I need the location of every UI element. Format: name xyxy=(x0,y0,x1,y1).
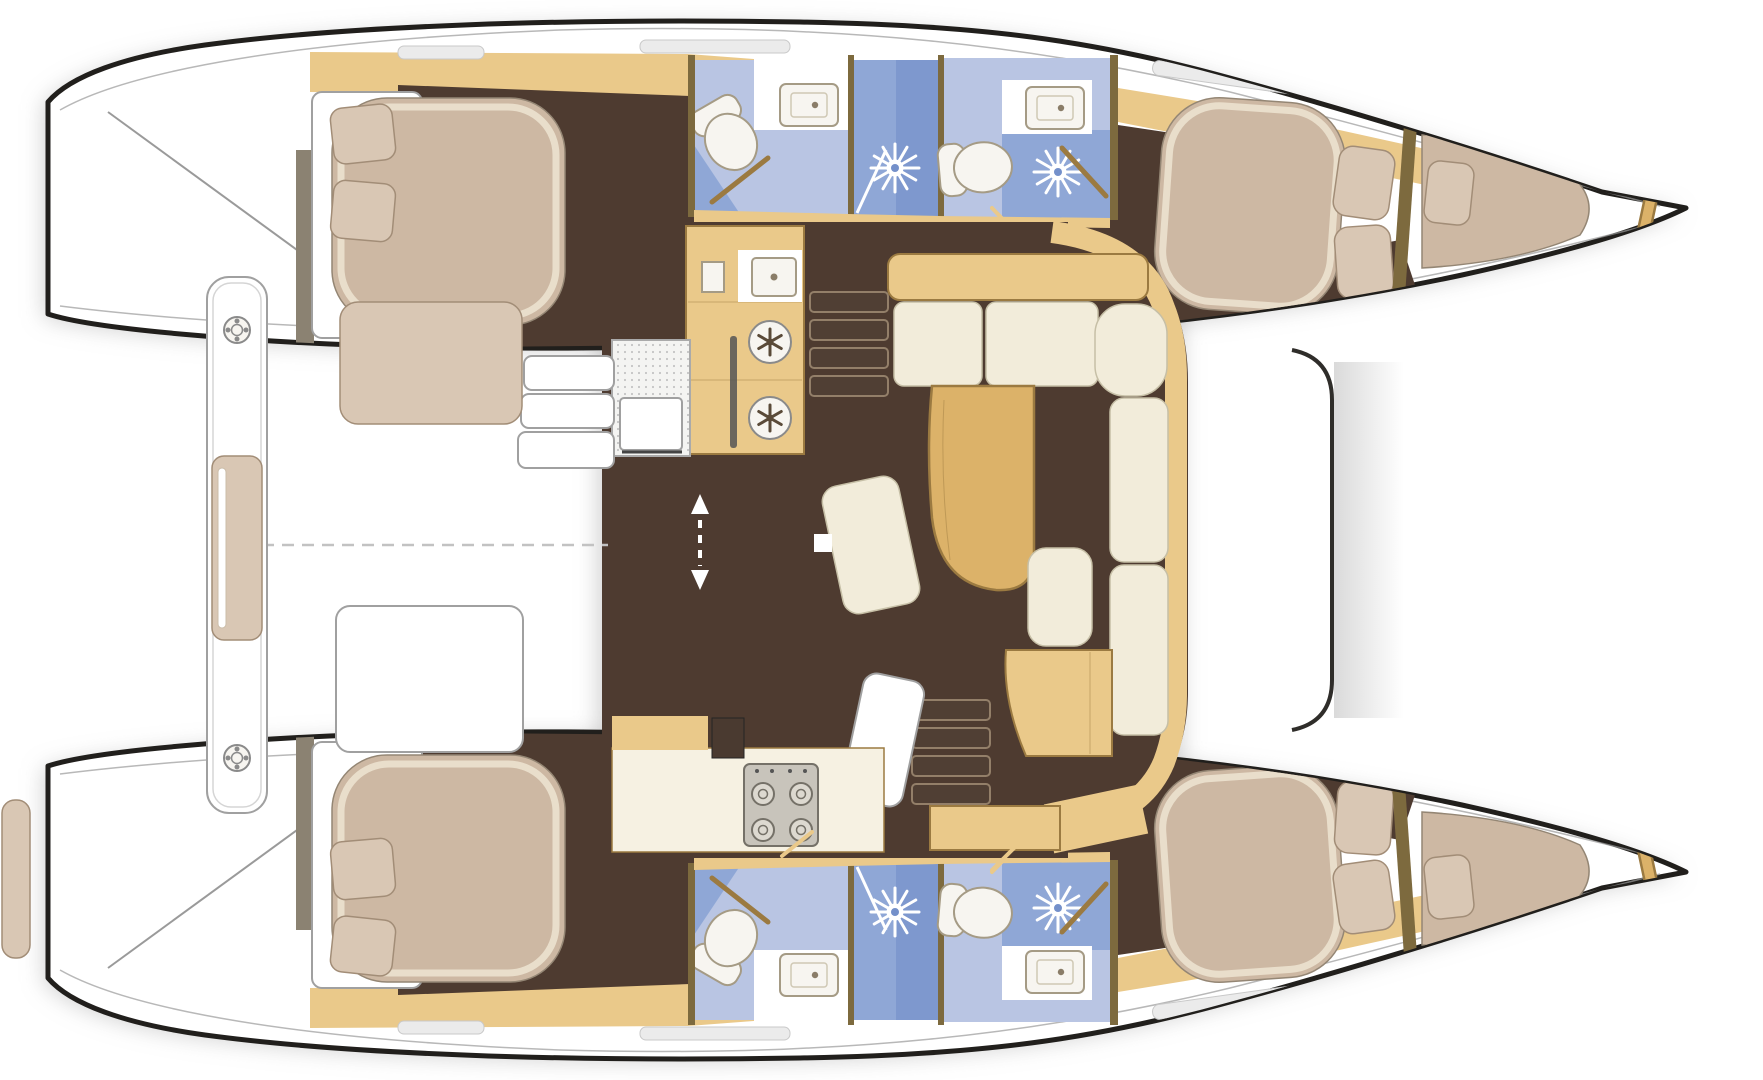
burner-icon xyxy=(752,819,774,841)
settee-back xyxy=(888,254,1148,300)
aft-cabinet xyxy=(930,806,1060,850)
table-leg xyxy=(814,534,832,552)
deck-plate-icon xyxy=(224,317,250,343)
beam-shadow xyxy=(1334,362,1404,718)
sink-drain xyxy=(771,274,778,281)
foredeck xyxy=(1292,350,1404,730)
appliance xyxy=(712,718,744,758)
cockpit-bench xyxy=(340,302,522,424)
counter-trim xyxy=(612,716,708,750)
burner-icon xyxy=(752,783,774,805)
forward-beam xyxy=(1292,350,1332,730)
settee-cushion-corner xyxy=(1095,304,1167,396)
burner-icon xyxy=(790,819,812,841)
salon-table xyxy=(929,386,1034,590)
settee-cushion xyxy=(1110,398,1168,562)
swim-ladder xyxy=(2,800,30,958)
icebox-grate xyxy=(612,340,690,456)
nav-desk xyxy=(1005,650,1112,756)
settee-cushion xyxy=(986,302,1098,386)
floorplan-canvas xyxy=(0,0,1763,1080)
nav-seat xyxy=(1028,548,1092,646)
fridge-lid-icon xyxy=(749,397,791,439)
cockpit-table xyxy=(336,606,523,752)
deck-plate-icon xyxy=(224,745,250,771)
fridge-lid-icon xyxy=(749,321,791,363)
burner-icon xyxy=(790,783,812,805)
helm-seat-cushion xyxy=(212,456,262,640)
settee-cushion xyxy=(894,302,982,386)
entry-steps xyxy=(518,356,614,468)
settee-cushion xyxy=(1110,565,1168,735)
oven-handle xyxy=(730,336,737,448)
galley-gadget xyxy=(702,262,724,292)
floorplan-page xyxy=(0,0,1763,1080)
salon xyxy=(518,222,1188,870)
